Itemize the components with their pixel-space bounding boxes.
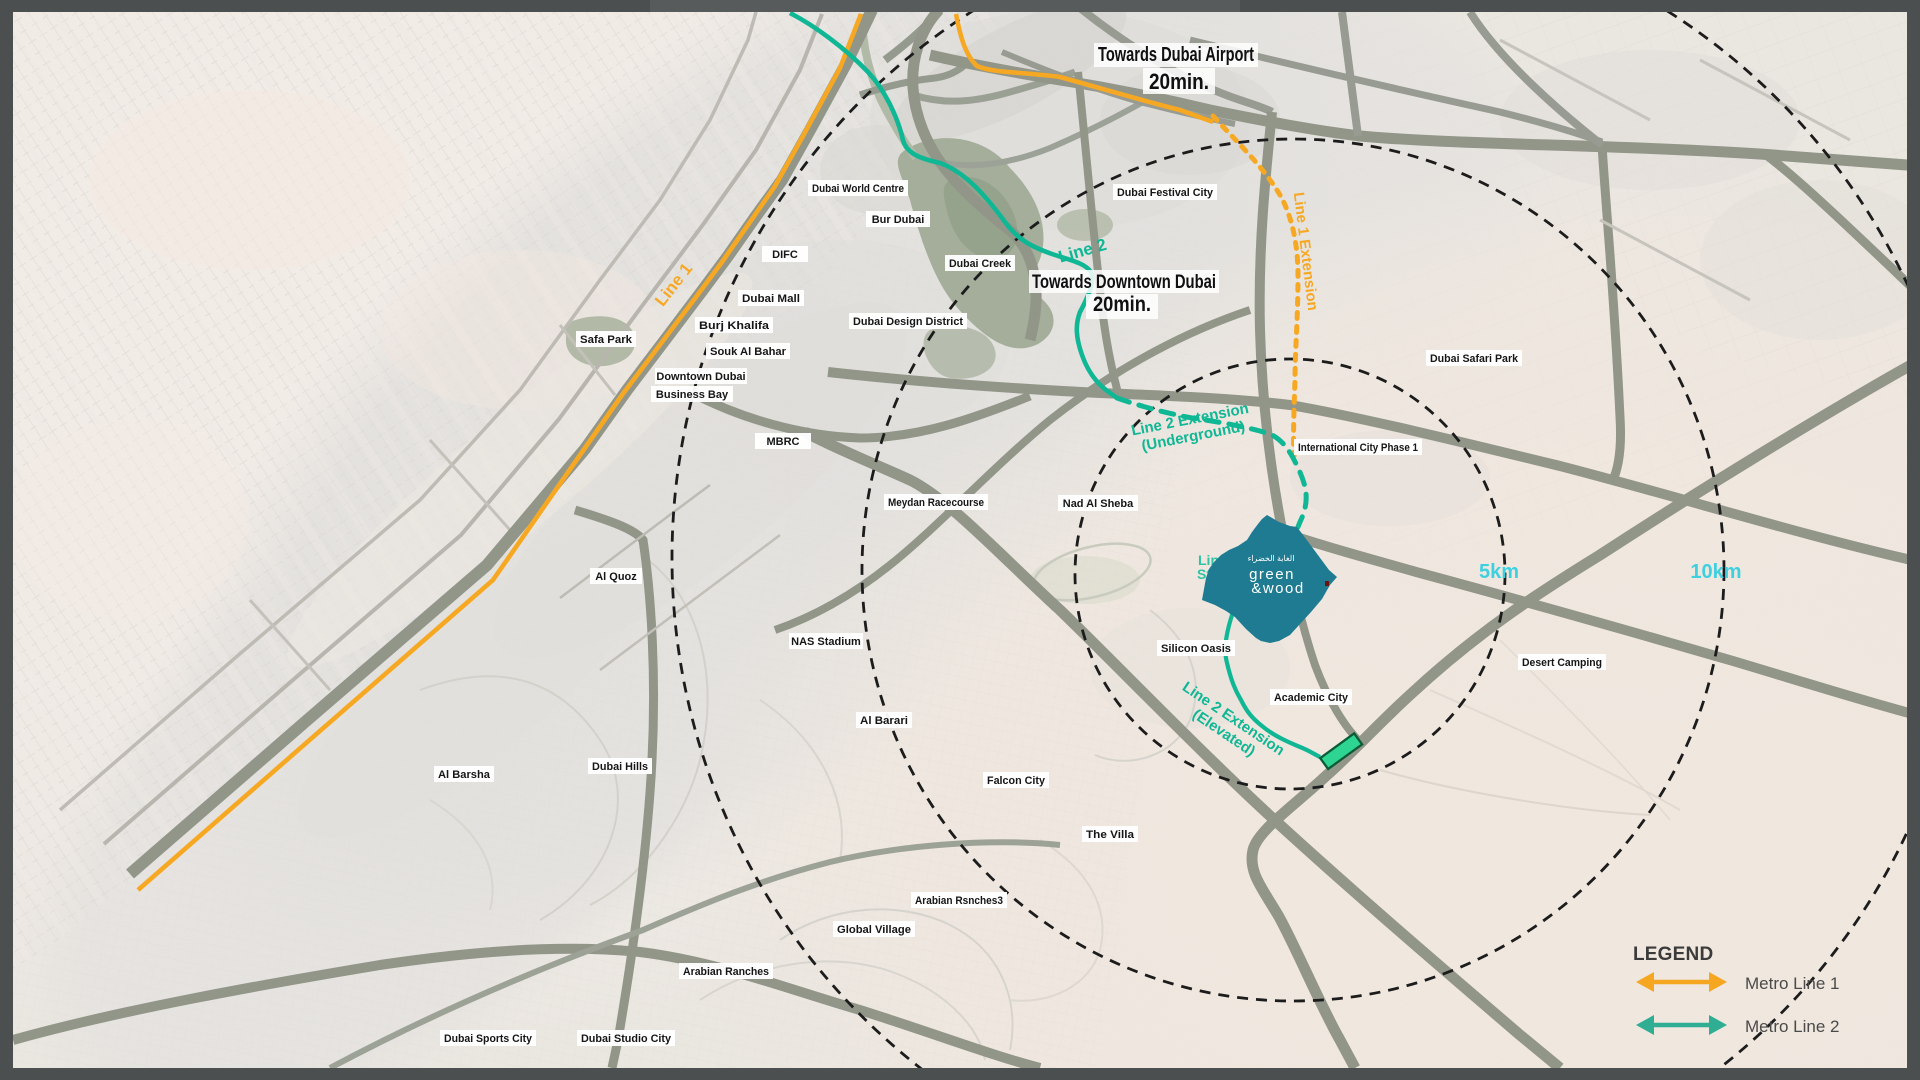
svg-text:Dubai Creek: Dubai Creek (949, 258, 1012, 270)
svg-text:20min.: 20min. (1093, 293, 1151, 316)
svg-text:Towards Dubai Airport: Towards Dubai Airport (1098, 44, 1254, 66)
svg-text:Dubai Festival City: Dubai Festival City (1117, 187, 1214, 199)
svg-text:Burj Khalifa: Burj Khalifa (699, 320, 770, 332)
svg-text:Dubai World Centre: Dubai World Centre (812, 183, 904, 195)
svg-text:الغابة الخضراء: الغابة الخضراء (1248, 554, 1295, 563)
svg-text:Arabian Rsnches3: Arabian Rsnches3 (915, 895, 1003, 907)
svg-text:Al Quoz: Al Quoz (595, 571, 637, 583)
svg-text:Dubai Hills: Dubai Hills (592, 761, 648, 773)
svg-text:DIFC: DIFC (772, 249, 798, 261)
svg-text:Global Village: Global Village (837, 924, 911, 936)
svg-text:Souk Al Bahar: Souk Al Bahar (710, 346, 787, 358)
svg-text:Dubai Mall: Dubai Mall (742, 293, 800, 305)
svg-text:10km: 10km (1690, 561, 1741, 583)
svg-text:Dubai Sports City: Dubai Sports City (444, 1033, 533, 1045)
svg-text:Towards Downtown Dubai: Towards Downtown Dubai (1032, 272, 1216, 293)
svg-text:20min.: 20min. (1149, 69, 1209, 94)
svg-text:NAS Stadium: NAS Stadium (791, 636, 861, 648)
svg-text:Metro Line 2: Metro Line 2 (1745, 1017, 1840, 1036)
svg-text:LEGEND: LEGEND (1633, 944, 1713, 965)
svg-text:Falcon City: Falcon City (987, 775, 1046, 787)
svg-text:Silicon Oasis: Silicon Oasis (1161, 643, 1231, 655)
svg-text:The Villa: The Villa (1086, 829, 1135, 841)
svg-text:International City Phase 1: International City Phase 1 (1298, 442, 1418, 454)
svg-text:Nad Al Sheba: Nad Al Sheba (1063, 498, 1134, 510)
svg-text:Arabian Ranches: Arabian Ranches (683, 966, 769, 978)
svg-text:Academic City: Academic City (1274, 692, 1349, 704)
svg-text:Dubai Design District: Dubai Design District (853, 316, 963, 328)
svg-text:Business Bay: Business Bay (656, 389, 729, 401)
svg-text:Dubai Studio City: Dubai Studio City (581, 1033, 672, 1045)
svg-text:Dubai Safari Park: Dubai Safari Park (1430, 353, 1519, 365)
svg-text:Metro Line 1: Metro Line 1 (1745, 974, 1840, 993)
svg-text:Al Barari: Al Barari (860, 715, 908, 727)
svg-text:Meydan Racecourse: Meydan Racecourse (888, 497, 984, 509)
svg-text:Al Barsha: Al Barsha (438, 769, 491, 781)
svg-text:Safa Park: Safa Park (580, 334, 633, 346)
svg-text:Desert Camping: Desert Camping (1522, 657, 1602, 669)
svg-text:MBRC: MBRC (767, 436, 800, 448)
svg-text:5km: 5km (1479, 561, 1519, 583)
svg-text:Bur Dubai: Bur Dubai (872, 214, 925, 226)
svg-text:Downtown Dubai: Downtown Dubai (656, 371, 745, 383)
svg-text:&wood: &wood (1251, 580, 1304, 597)
